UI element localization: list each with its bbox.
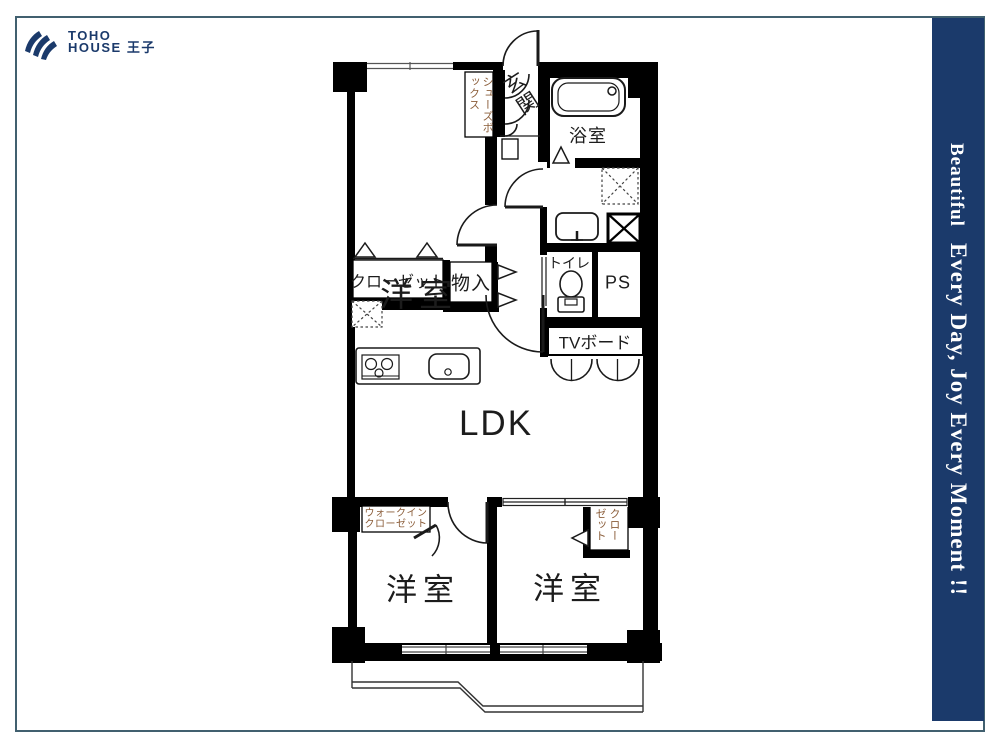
kitchen-icon xyxy=(356,348,480,384)
bedroom-top-door-arc xyxy=(457,205,497,245)
label-closet-top: クローゼット xyxy=(350,268,446,292)
label-shoe-box: シューズボックス xyxy=(466,76,493,136)
washbasin-icon xyxy=(556,213,598,241)
page: { "logo": { "line1": "TOHO", "line2": "H… xyxy=(0,0,1000,750)
label-tv-board: TVボード xyxy=(559,329,632,354)
label-bedroom-bottom-right: 洋室 xyxy=(533,564,607,609)
bathtub-icon xyxy=(552,78,625,116)
washroom-door-arc xyxy=(505,169,543,207)
bedroom-bl-door-arc xyxy=(448,502,487,543)
label-pipe-space: PS xyxy=(605,273,631,294)
sliding-door xyxy=(502,497,628,507)
label-bedroom-bottom-left: 洋室 xyxy=(386,565,460,610)
entrance-step xyxy=(502,139,518,159)
entry-door-arc xyxy=(503,31,538,66)
label-storage: 物入 xyxy=(451,269,491,296)
balcony-outline xyxy=(352,661,643,712)
toilet-icon xyxy=(558,271,584,312)
label-walk-in-closet: ウォークイン クローゼット xyxy=(365,508,428,530)
bathroom-door xyxy=(550,147,575,168)
floorplan-drawing xyxy=(0,0,1000,750)
label-ldk: LDK xyxy=(459,404,533,444)
label-bathroom: 浴室 xyxy=(569,122,607,148)
label-closet-bottom-right: クローゼット xyxy=(593,508,621,550)
label-toilet: トイレ xyxy=(548,253,590,273)
wic-door-arc xyxy=(432,525,439,556)
